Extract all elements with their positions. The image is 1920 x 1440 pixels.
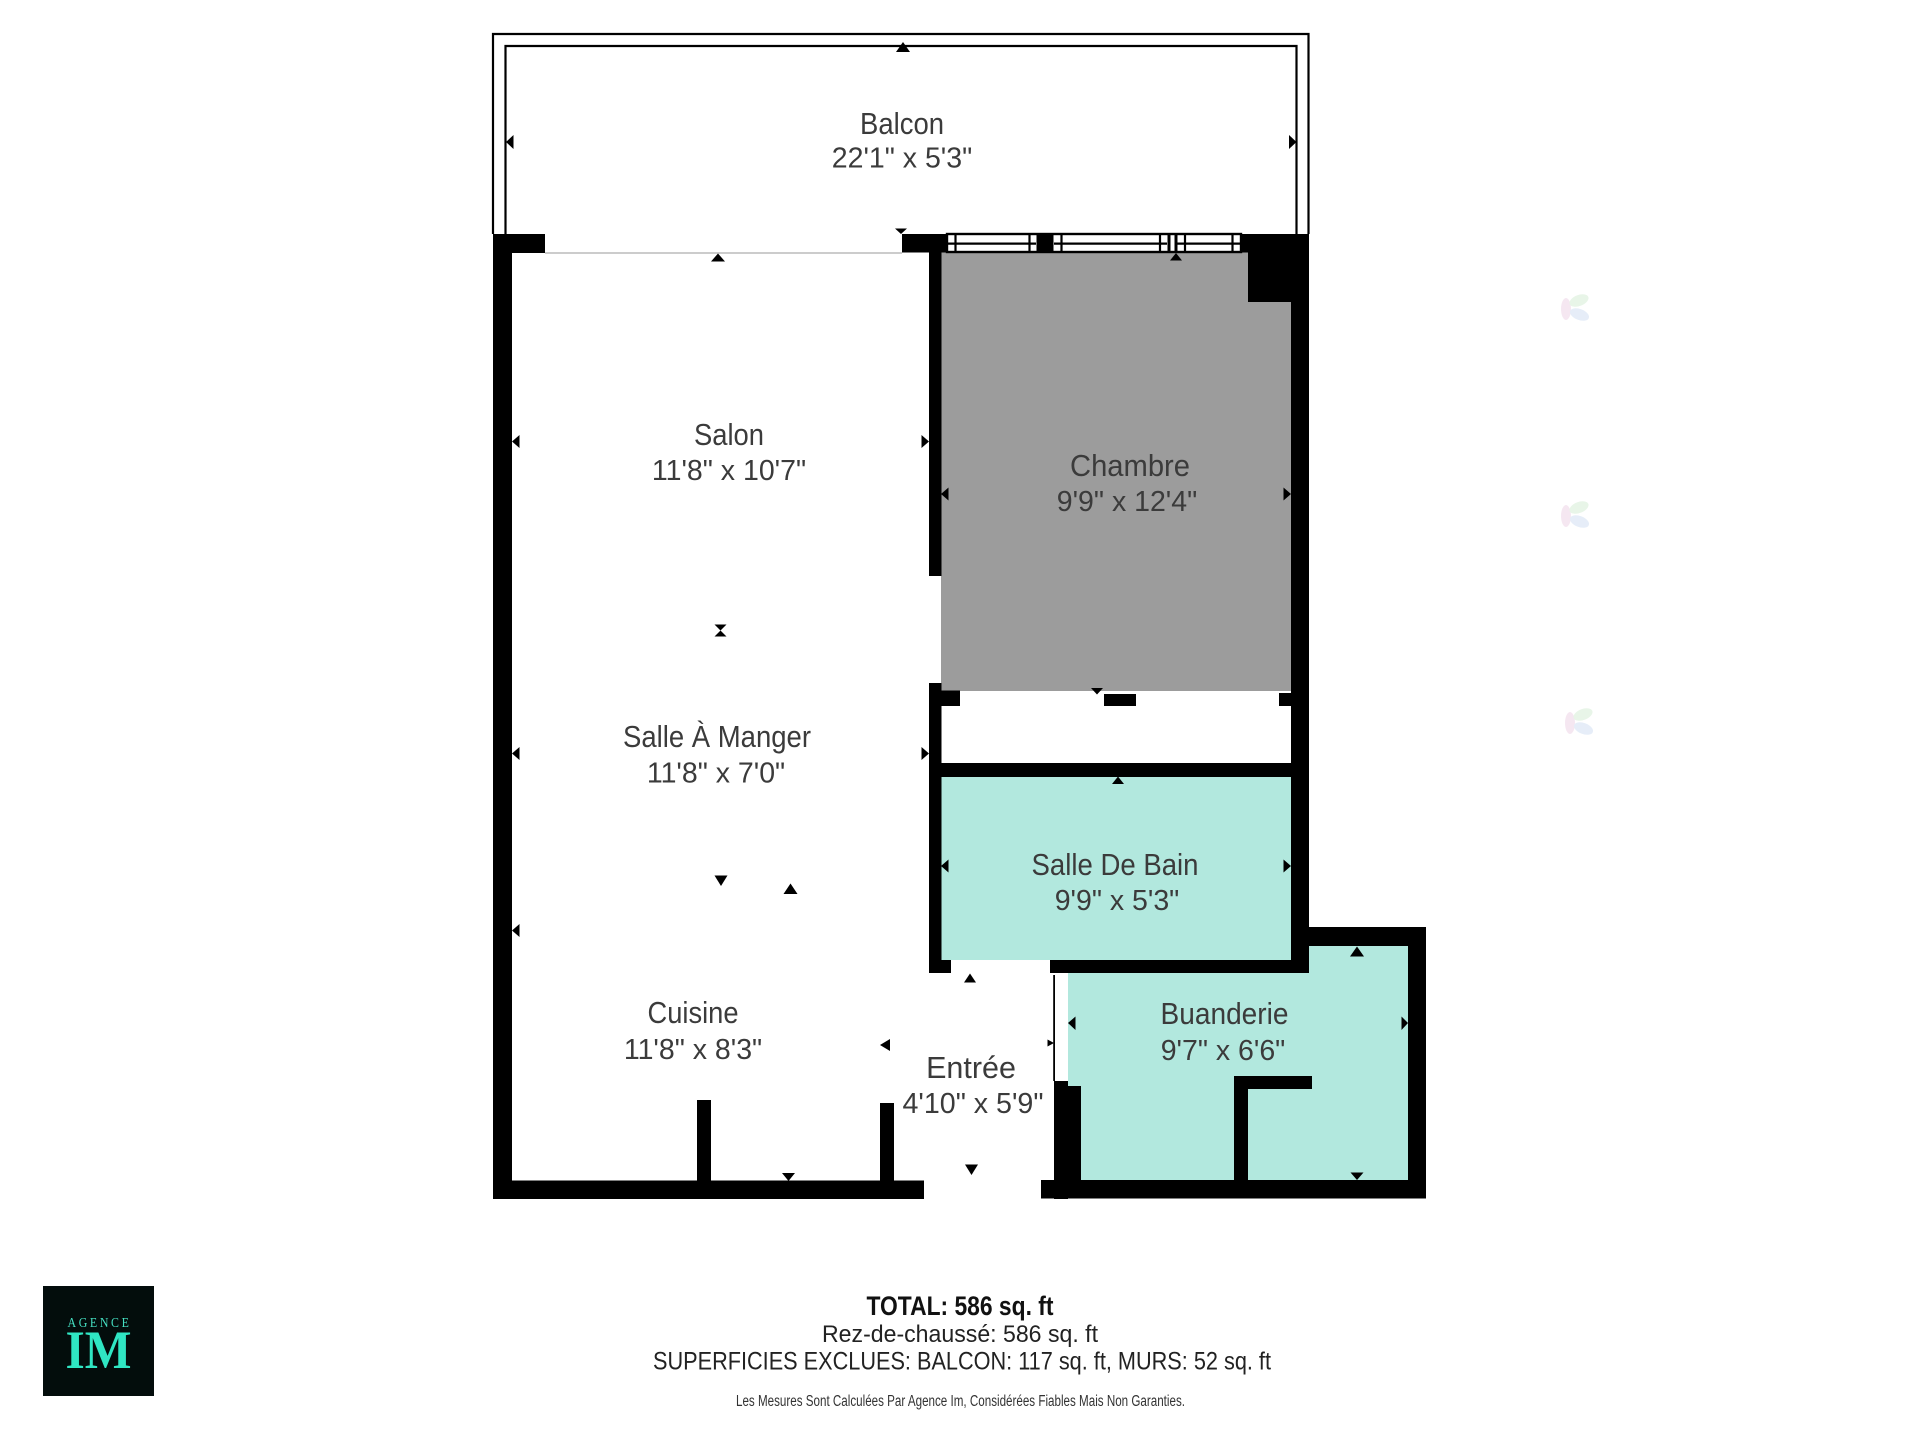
- svg-text:Rez-de-chaussé: 586 sq. ft: Rez-de-chaussé: 586 sq. ft: [822, 1321, 1098, 1348]
- svg-text:Les Mesures Sont Calculées Par: Les Mesures Sont Calculées Par Agence Im…: [736, 1393, 1185, 1410]
- svg-text:9'7" x 6'6": 9'7" x 6'6": [1161, 1035, 1286, 1067]
- svg-text:9'9" x 5'3": 9'9" x 5'3": [1055, 885, 1180, 917]
- svg-text:11'8" x 10'7": 11'8" x 10'7": [652, 455, 806, 487]
- svg-text:4'10" x 5'9": 4'10" x 5'9": [903, 1088, 1044, 1120]
- svg-text:IM: IM: [66, 1320, 132, 1380]
- svg-text:Chambre: Chambre: [1070, 449, 1190, 483]
- svg-text:Salle À Manger: Salle À Manger: [623, 719, 811, 754]
- svg-text:Entrée: Entrée: [926, 1051, 1016, 1085]
- svg-text:Salle De Bain: Salle De Bain: [1032, 848, 1199, 882]
- svg-text:9'9" x 12'4": 9'9" x 12'4": [1057, 486, 1197, 518]
- svg-text:11'8" x 7'0": 11'8" x 7'0": [647, 758, 785, 790]
- svg-text:TOTAL: 586 sq. ft: TOTAL: 586 sq. ft: [867, 1291, 1054, 1321]
- svg-text:Salon: Salon: [694, 418, 764, 452]
- svg-text:SUPERFICIES EXCLUES: BALCON: 1: SUPERFICIES EXCLUES: BALCON: 117 sq. ft,…: [653, 1348, 1271, 1376]
- svg-text:Buanderie: Buanderie: [1161, 997, 1289, 1031]
- svg-text:Balcon: Balcon: [860, 107, 944, 141]
- svg-text:22'1" x 5'3": 22'1" x 5'3": [832, 143, 972, 175]
- svg-text:11'8" x 8'3": 11'8" x 8'3": [624, 1034, 762, 1066]
- svg-text:Cuisine: Cuisine: [648, 996, 739, 1030]
